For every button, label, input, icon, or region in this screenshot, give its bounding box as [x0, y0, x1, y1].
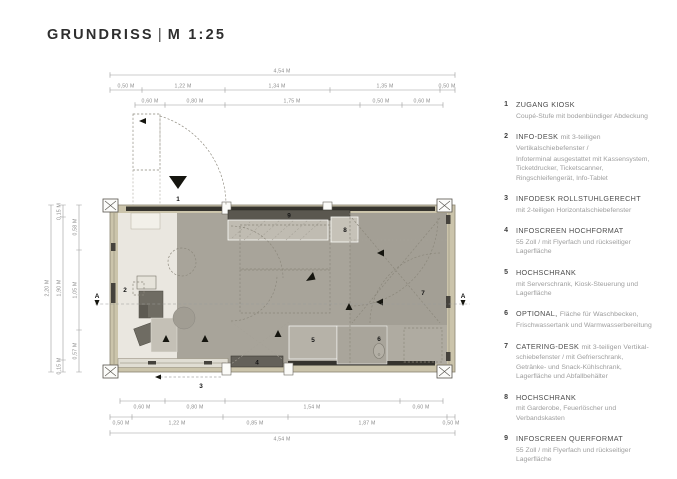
plan-marker-1: 1: [176, 196, 180, 203]
legend: 1 ZUGANG KIOSK Coupé-Stufe mit bodenbünd…: [501, 100, 653, 465]
title-scale: M 1:25: [168, 27, 226, 43]
sink-icon: [374, 344, 385, 359]
entry-arrow-icon: [169, 176, 187, 189]
section-arrow-icon: [95, 300, 100, 306]
legend-desc: 55 Zoll / mit Flyerfach und rückseitiger…: [516, 446, 653, 465]
dim-label: 0,85 M: [246, 421, 263, 427]
page: GRUNDRISS|M 1:25: [0, 0, 677, 479]
legend-item-3: 3 INFODESK ROLLSTUHLGERECHT mit 2-teilig…: [501, 194, 653, 215]
dim-label: 0,50 M: [112, 421, 129, 427]
dimensions-bottom: 0,60 M 0,80 M 1,54 M 0,60 M 0,50 M 1,22 …: [110, 398, 460, 442]
dimensions-top: 4,54 M 0,50 M 1,22 M 1,34 M 1,35 M 0,50 …: [110, 69, 456, 108]
plan-marker-2: 2: [123, 287, 127, 294]
dim-label: 0,60 M: [412, 405, 429, 411]
dim-label: 0,58 M: [73, 218, 79, 235]
dim-label: 0,60 M: [141, 99, 158, 105]
legend-item-9: 9 INFOSCREEN QUERFORMAT 55 Zoll / mit Fl…: [501, 434, 653, 465]
legend-title: CATERING-DESK: [516, 342, 579, 351]
legend-item-7: 7 CATERING-DESK mit 3-teiligen Vertikal-…: [501, 342, 653, 382]
plan-marker-3: 3: [199, 383, 203, 390]
legend-desc: mit Serverschrank, Kiosk-Steuerung und L…: [516, 280, 653, 299]
legend-item-2: 2 INFO-DESK mit 3-teiligen Vertikalschie…: [501, 132, 653, 183]
legend-number: 6: [501, 309, 508, 330]
dim-label: 0,50 M: [372, 99, 389, 105]
page-title: GRUNDRISS|M 1:25: [47, 27, 226, 43]
dim-label: 1,22 M: [174, 84, 191, 90]
plan-marker-5: 5: [311, 337, 315, 344]
legend-number: 7: [501, 342, 508, 382]
plan-marker-7: 7: [421, 290, 425, 297]
legend-desc: Infoterminal ausgestattet mit Kassensyst…: [516, 155, 653, 183]
floor-plan-drawing: A A 1 2 3 4 5 6 7 8 9 4,54 M 0,50 M 1,22…: [40, 60, 485, 455]
dim-label: 0,50 M: [117, 84, 134, 90]
legend-item-6: 6 OPTIONAL, Fläche für Waschbecken, Fris…: [501, 309, 653, 330]
door-swing-arc: [160, 116, 226, 205]
section-label-right: A: [461, 293, 466, 300]
legend-desc: Coupé-Stufe mit bodenbündiger Abdeckung: [516, 112, 653, 121]
dim-label: 0,15 M: [57, 203, 63, 220]
dim-label: 0,15 M: [57, 357, 63, 374]
legend-title: INFODESK ROLLSTUHLGERECHT: [516, 194, 641, 203]
plan-marker-4: 4: [255, 360, 259, 367]
dim-label: 1,75 M: [283, 99, 300, 105]
dim-label: 0,57 M: [73, 342, 79, 359]
dim-label: 1,87 M: [358, 421, 375, 427]
infodesk-window: [118, 359, 228, 368]
corner-casting-icon: [437, 365, 452, 378]
section-label-left: A: [95, 293, 100, 300]
dim-label: 1,05 M: [73, 281, 79, 298]
dim-label: 4,54 M: [273, 69, 290, 75]
legend-number: 9: [501, 434, 508, 465]
dim-label: 1,35 M: [376, 84, 393, 90]
optional-sink-area: [337, 326, 387, 364]
corner-casting-icon: [437, 199, 452, 212]
legend-title: INFOSCREEN HOCHFORMAT: [516, 226, 623, 235]
plan-marker-6: 6: [377, 336, 381, 343]
legend-number: 2: [501, 132, 508, 183]
dim-label: 2,20 M: [45, 279, 51, 296]
dim-label: 4,54 M: [273, 437, 290, 443]
legend-number: 8: [501, 393, 508, 424]
legend-number: 3: [501, 194, 508, 215]
door-leaf: [133, 114, 160, 170]
legend-title: ZUGANG KIOSK: [516, 100, 575, 109]
legend-item-4: 4 INFOSCREEN HOCHFORMAT 55 Zoll / mit Fl…: [501, 226, 653, 257]
dim-label: 0,60 M: [133, 405, 150, 411]
section-arrow-icon: [461, 300, 466, 306]
legend-desc: schiebefenster / mit Gefrierschrank, Get…: [516, 353, 653, 381]
legend-desc: mit Garderobe, Feuerlöscher und Verbands…: [516, 404, 653, 423]
plan-marker-8: 8: [343, 227, 347, 234]
plan-marker-9: 9: [287, 213, 291, 220]
legend-title: INFO-DESK: [516, 132, 558, 141]
dim-label: 0,80 M: [186, 405, 203, 411]
legend-desc: Frischwassertank und Warmwasserbereitung: [516, 321, 653, 330]
dim-label: 1,90 M: [57, 279, 63, 296]
table-round: [173, 307, 195, 329]
terminal-device: [137, 276, 156, 289]
title-separator: |: [154, 27, 168, 43]
legend-title: OPTIONAL,: [516, 309, 558, 318]
dim-label: 1,54 M: [303, 405, 320, 411]
door-arrow-icon: [139, 118, 146, 124]
legend-item-5: 5 HOCHSCHRANK mit Serverschrank, Kiosk-S…: [501, 268, 653, 299]
legend-item-8: 8 HOCHSCHRANK mit Garderobe, Feuerlösche…: [501, 393, 653, 424]
entrance-door: [133, 114, 226, 205]
title-main: GRUNDRISS: [47, 27, 154, 43]
dim-label: 0,50 M: [442, 421, 459, 427]
legend-desc: 55 Zoll / mit Flyerfach und rückseitiger…: [516, 238, 653, 257]
shelf-unit: [228, 220, 328, 240]
legend-number: 5: [501, 268, 508, 299]
dim-label: 0,60 M: [413, 99, 430, 105]
dim-label: 0,80 M: [186, 99, 203, 105]
legend-item-1: 1 ZUGANG KIOSK Coupé-Stufe mit bodenbünd…: [501, 100, 653, 121]
arrow-left-icon: [155, 375, 161, 380]
legend-title: HOCHSCHRANK: [516, 268, 576, 277]
legend-title: INFOSCREEN QUERFORMAT: [516, 434, 623, 443]
legend-title: HOCHSCHRANK: [516, 393, 576, 402]
legend-number: 1: [501, 100, 508, 121]
legend-number: 4: [501, 226, 508, 257]
kiosk-step: [131, 213, 160, 229]
legend-desc: mit 2-teiligen Horizontalschiebefenster: [516, 206, 653, 215]
dim-label: 1,22 M: [168, 421, 185, 427]
dimensions-left: 2,20 M 0,15 M 1,90 M 0,15 M 0,58 M 1,05 …: [45, 203, 82, 375]
dim-label: 0,50 M: [438, 84, 455, 90]
corner-casting-icon: [103, 199, 118, 212]
dim-label: 1,34 M: [268, 84, 285, 90]
exit-arrow: [155, 375, 221, 380]
counter-segment: [151, 318, 177, 352]
corner-casting-icon: [103, 365, 118, 378]
